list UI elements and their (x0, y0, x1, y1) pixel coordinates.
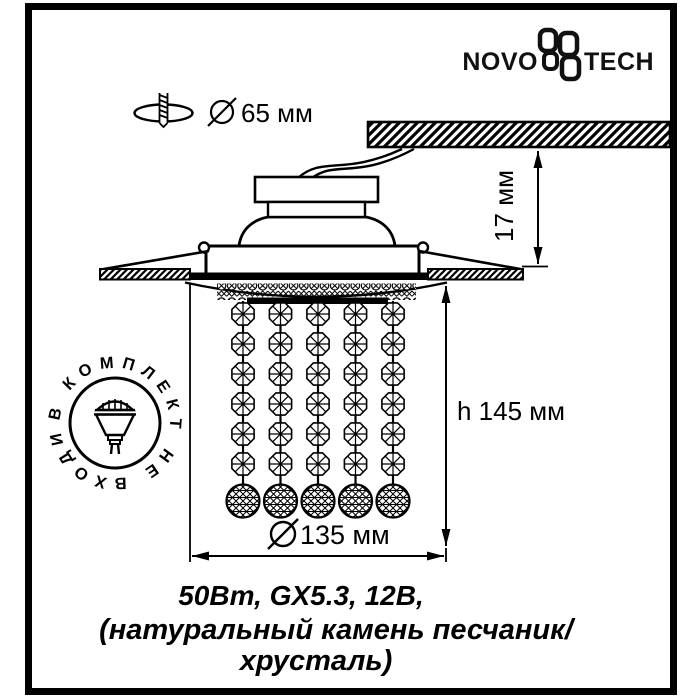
logo-text-tech: TECH (584, 48, 654, 76)
height-label: h 145 мм (457, 396, 565, 426)
crystal-balls (227, 485, 410, 518)
logo-text-novo: NOVO (462, 48, 538, 76)
spring-clip-right (419, 251, 523, 270)
dim-recess-depth: 17 мм (489, 151, 548, 267)
stamp-text: В КОМПЛЕКТ НЕ ВХОДИТ (0, 0, 184, 492)
outer-diameter-label: 135 мм (300, 520, 390, 550)
fixture (100, 177, 523, 304)
ceiling-panel (368, 122, 670, 147)
spring-clip-left (101, 251, 209, 270)
ceiling-cut-right (428, 269, 523, 280)
spec-line-2: (натуральный камень песчаник/ (99, 614, 576, 646)
fixture-can-body (206, 246, 419, 277)
lamp-housing-dome (239, 217, 395, 246)
spec-line-3: хрусталь) (238, 645, 393, 677)
lamp-holder-neck (268, 202, 365, 217)
supply-wires (298, 149, 414, 178)
diameter-icon (268, 519, 298, 549)
hole-diameter-label: 65 мм (241, 98, 313, 128)
trim-flange (191, 273, 445, 281)
not-included-stamp: В КОМПЛЕКТ НЕ ВХОДИТ (0, 0, 184, 492)
spec-text-block: 50Вт, GX5.3, 12В, (натуральный камень пе… (99, 580, 576, 677)
spec-sheet-page: { "brand": { "wordmark_left": "NOVO", "w… (0, 0, 700, 700)
diameter-icon (208, 98, 236, 126)
recess-depth-label: 17 мм (489, 170, 519, 242)
spec-line-1: 50Вт, GX5.3, 12В, (178, 580, 424, 611)
technical-drawing: NOVO TECH 65 мм (0, 0, 700, 700)
novotech-logo-mark-icon (540, 30, 579, 79)
dim-height: h 145 мм (446, 286, 565, 562)
novotech-logo: NOVO TECH (462, 30, 654, 79)
mounting-hole-note: 65 мм (135, 93, 313, 128)
ceiling-cut-left (100, 269, 190, 280)
junction-box (255, 177, 378, 202)
drill-icon (135, 93, 193, 127)
mr16-lamp-icon (94, 399, 136, 454)
